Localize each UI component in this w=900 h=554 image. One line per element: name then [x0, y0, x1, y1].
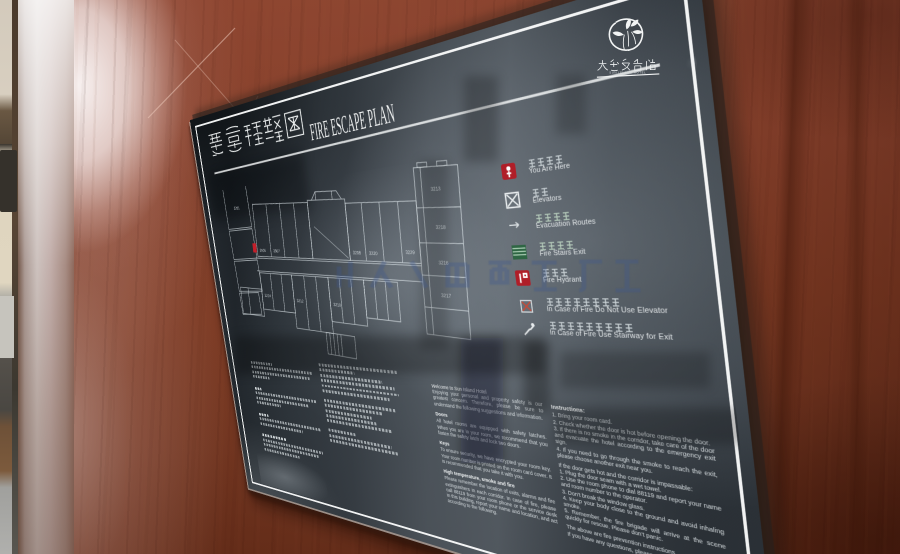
svg-text:3212: 3212 — [296, 298, 304, 304]
svg-text:3210: 3210 — [333, 302, 341, 309]
svg-text:3201: 3201 — [234, 206, 241, 211]
svg-text:3505: 3505 — [259, 248, 266, 254]
svg-text:3213: 3213 — [430, 185, 441, 192]
svg-text:3507: 3507 — [273, 248, 280, 254]
svg-text:SUN ISLAND HOTEL: SUN ISLAND HOTEL — [609, 71, 646, 75]
svg-text:3214: 3214 — [264, 293, 271, 299]
svg-text:3218: 3218 — [435, 224, 446, 231]
